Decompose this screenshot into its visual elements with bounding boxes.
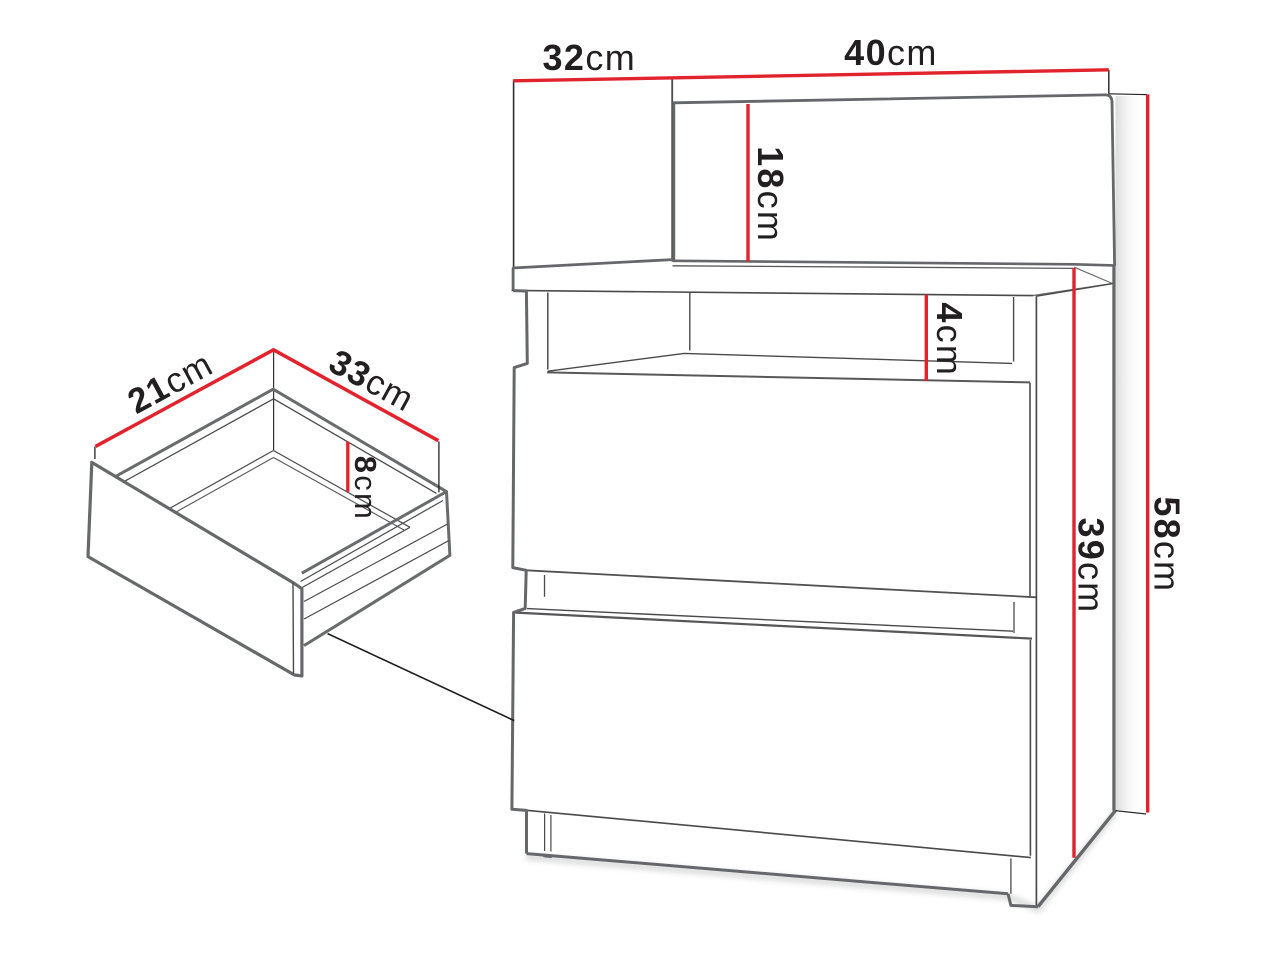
svg-text:18cm: 18cm (750, 146, 791, 243)
svg-text:4cm: 4cm (929, 302, 970, 377)
svg-text:58cm: 58cm (1146, 496, 1187, 593)
svg-text:8cm: 8cm (348, 456, 383, 521)
svg-text:39cm: 39cm (1070, 518, 1111, 615)
svg-text:33cm: 33cm (323, 342, 421, 420)
svg-text:21cm: 21cm (121, 344, 219, 421)
svg-text:32cm: 32cm (542, 37, 636, 78)
svg-text:40cm: 40cm (844, 32, 938, 73)
